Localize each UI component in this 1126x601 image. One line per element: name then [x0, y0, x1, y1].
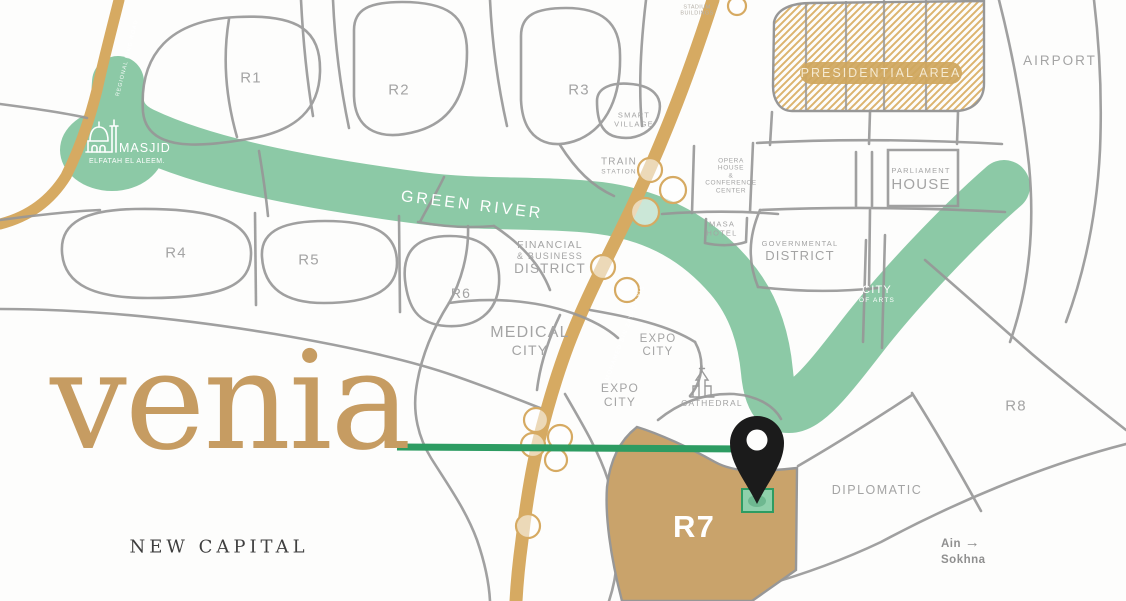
- opera-house-label: OPERAHOUSE &CONFERENCE CENTER: [705, 157, 757, 194]
- district-label-r2: R2: [388, 81, 410, 98]
- masa-hotel-label: MASAHOTEL: [706, 220, 737, 237]
- train-station-label: TRAIN STATION: [601, 157, 637, 176]
- cathedral-label: CATHEDRAL: [681, 399, 743, 409]
- parliament-house-label: PARLIAMENT HOUSE: [891, 167, 950, 193]
- district-label-r5: R5: [298, 251, 320, 268]
- map-canvas: [0, 0, 1126, 601]
- direction-arrow-icon: →: [965, 534, 981, 551]
- presidential-area-label: PRESIDENTIAL AREA: [800, 62, 962, 84]
- district-label-r6: R6: [451, 285, 471, 301]
- masjid-label: MASJID: [119, 141, 171, 155]
- masjid-sublabel: ELFATAH EL ALEEM.: [89, 158, 165, 166]
- airport-label: AIRPORT: [1023, 53, 1097, 69]
- district-label-r8: R8: [1005, 397, 1027, 414]
- medical-city-label: MEDICAL CITY: [490, 324, 570, 358]
- expo-city-label-1: EXPOCITY: [640, 333, 677, 359]
- connector-line: [397, 447, 748, 449]
- city-of-arts-label: CITY OF ARTS: [859, 284, 895, 304]
- district-label-r1: R1: [240, 69, 262, 86]
- district-label-r7: R7: [673, 509, 715, 545]
- governmental-district-label: GOVERNMENTAL DISTRICT: [762, 240, 839, 264]
- presidential-area-shape: [773, 0, 984, 111]
- ain-sokhna-label: Ain → Sokhna: [941, 533, 986, 567]
- expo-city-label-2: EXPOCITY: [601, 382, 639, 410]
- diplomatic-label: DIPLOMATIC: [832, 483, 922, 497]
- district-label-r4: R4: [165, 244, 187, 261]
- stadium-label: STADIUMBUILDINGS: [680, 5, 713, 18]
- smart-village-label: SMARTVILLAGE: [614, 111, 654, 128]
- financial-district-label: FINANCIAL & BUSINESS DISTRICT: [514, 239, 586, 277]
- venia-location-map: STADIUMBUILDINGS R1 R2 R3 R4 R5 R6 R8 R7…: [0, 0, 1126, 601]
- district-label-r3: R3: [568, 81, 590, 98]
- cathedral-icon: [690, 366, 714, 397]
- brand-tagline: NEW CAPITAL: [129, 538, 308, 559]
